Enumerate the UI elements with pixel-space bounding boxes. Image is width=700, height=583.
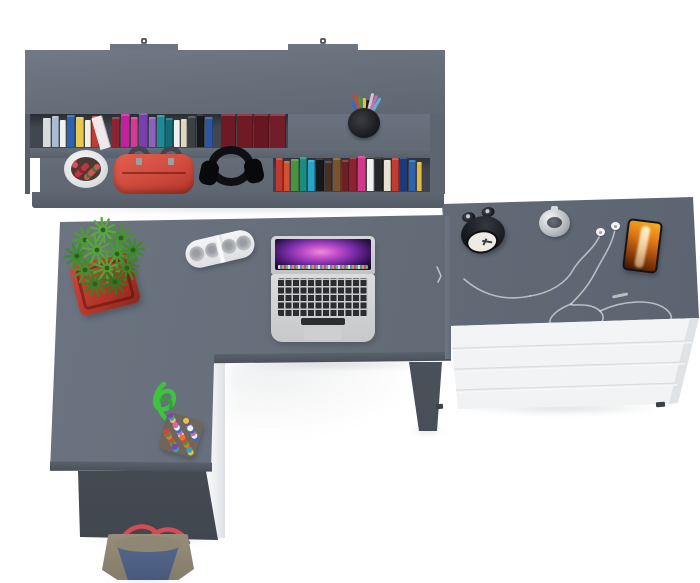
book-spine [67,115,75,147]
phone-screen [624,220,661,271]
book-spine [221,114,236,148]
book-spine [174,120,180,147]
hutch-right-wall [430,114,445,194]
book-spine [254,114,269,148]
book-spine [291,159,299,191]
book-spine [149,117,156,147]
book-spine [308,160,315,191]
book-spine [276,158,283,191]
book-spine [52,116,59,147]
floor-shading [228,364,433,444]
hutch-left-wall [25,114,30,194]
colour-dot [72,162,78,168]
book-spine [76,117,84,147]
laptop-spacebar [301,318,345,325]
handbag-buckle [136,158,142,165]
book-spine [237,114,253,148]
wall-hook-icon [141,38,147,44]
book-spine [350,157,357,191]
book-spine [43,118,51,147]
book-spine [85,120,91,147]
desk-set-top-view-scene: Top view of a grey and white corner desk… [0,0,700,583]
earphone-jack [612,292,628,298]
book-spine [325,161,332,191]
book-spine [131,117,138,147]
book-spine [333,158,341,191]
tote-bag-flap [114,536,182,552]
book-spine [417,162,422,191]
speaker-grille [188,245,206,263]
watch-crown [551,206,558,211]
drawer-unit-foot [436,404,443,410]
speaker-grille [235,234,253,252]
book-spine [400,157,408,191]
book-spine [367,159,374,191]
book-spine [157,115,165,147]
laptop-wallpaper [275,239,371,270]
drawer-unit-foot [656,402,665,408]
book-row-maroon-volumes [221,114,287,148]
book-spine [205,117,213,147]
white-flower-pot [64,150,108,188]
flower-blooms [71,157,101,181]
desk-return-front-edge [50,461,212,471]
earbud [611,222,620,230]
book-spine [166,118,173,147]
tote-bag-body [102,534,194,580]
book-spine [121,114,130,147]
book-spine [60,120,66,147]
tote-bag [100,518,196,582]
alarm-clock [458,209,510,260]
watch-dial [547,217,562,228]
book-spine [139,113,148,147]
book-spine [188,116,196,147]
laptop-dock [278,265,368,269]
book-row-upper [43,114,223,147]
book-spine [181,119,187,147]
hutch-top-panel [25,50,445,114]
laptop-base [271,274,375,342]
book-spine [342,160,349,191]
book-spine [358,156,366,191]
colour-dot [94,164,100,170]
pom-pom-pouch [148,378,208,456]
earbud [596,228,605,236]
headphone-cup [198,159,221,186]
chrome-pocket-watch [539,209,570,237]
book-spine [300,157,307,191]
smartphone [622,218,663,274]
book-spine [409,160,416,191]
book-spine [284,161,290,191]
laptop-screen [271,236,375,274]
book-spine [316,158,324,191]
handbag-buckle [168,158,174,165]
phone-wallpaper-waterfall [634,226,651,269]
handbag-zipper [122,172,186,174]
book-spine [392,158,399,191]
book-spine [112,117,120,147]
colour-dot [83,163,89,169]
book-spine [197,114,204,147]
book-row-lower [276,155,424,191]
succulent-plant [55,212,155,312]
laptop-trackpad [304,327,342,340]
macbook-laptop [271,236,375,342]
hutch-bottom-edge [32,192,444,208]
red-handbag [114,146,194,196]
clock-face [465,228,500,256]
pen-cup [348,108,380,138]
handbag-body [114,154,194,194]
wall-hook-icon [320,38,326,44]
book-spine [270,114,286,148]
book-spine [384,160,391,191]
laptop-keyboard [278,278,368,316]
black-headphones [200,144,264,190]
book-spine [375,157,383,191]
